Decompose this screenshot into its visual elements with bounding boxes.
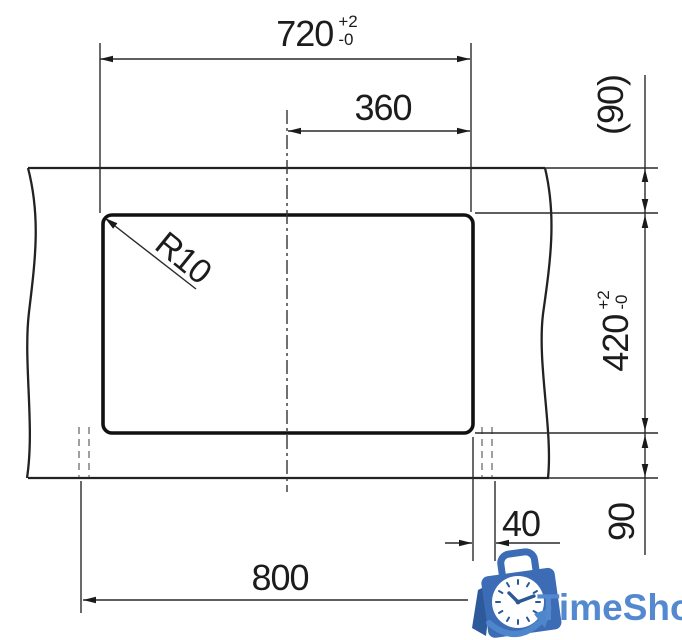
dimension-cutout-height-value: 420 bbox=[598, 315, 634, 372]
dimension-bottom-offset: 90 bbox=[604, 503, 640, 541]
tolerance-minus: -0 bbox=[338, 31, 357, 49]
dimension-center-offset-value: 360 bbox=[354, 90, 411, 126]
worktop-left-break-line bbox=[27, 168, 36, 478]
dimension-cutout-height-tolerance: +2 -0 bbox=[595, 290, 631, 309]
dimension-lines bbox=[81, 43, 658, 613]
dimension-top-offset: (90) bbox=[593, 75, 629, 135]
dimension-bottom-offset-value: 90 bbox=[604, 503, 640, 541]
technical-drawing bbox=[0, 0, 682, 640]
tolerance-plus: +2 bbox=[595, 290, 613, 309]
dimension-top-offset-value: (90) bbox=[593, 75, 629, 135]
dimension-arrowheads bbox=[83, 56, 648, 604]
tolerance-minus: -0 bbox=[613, 290, 631, 309]
dimension-edge-overhang: 40 bbox=[502, 506, 540, 542]
dimension-total-width: 800 bbox=[251, 560, 308, 596]
dimension-center-offset: 360 bbox=[354, 90, 411, 126]
clock-center-dot-icon bbox=[516, 600, 521, 605]
dimension-cutout-height: 420 +2 -0 bbox=[598, 290, 634, 371]
dimension-cutout-width: 720 +2 -0 bbox=[276, 16, 357, 52]
dimension-cutout-width-value: 720 bbox=[276, 16, 333, 52]
tolerance-plus: +2 bbox=[338, 13, 357, 31]
worktop-right-break-line bbox=[542, 168, 552, 478]
timeshop-logo-text: TimeShop bbox=[537, 587, 682, 629]
dimension-cutout-width-tolerance: +2 -0 bbox=[338, 13, 357, 49]
dimension-edge-overhang-value: 40 bbox=[502, 506, 540, 542]
dimension-total-width-value: 800 bbox=[251, 560, 308, 596]
